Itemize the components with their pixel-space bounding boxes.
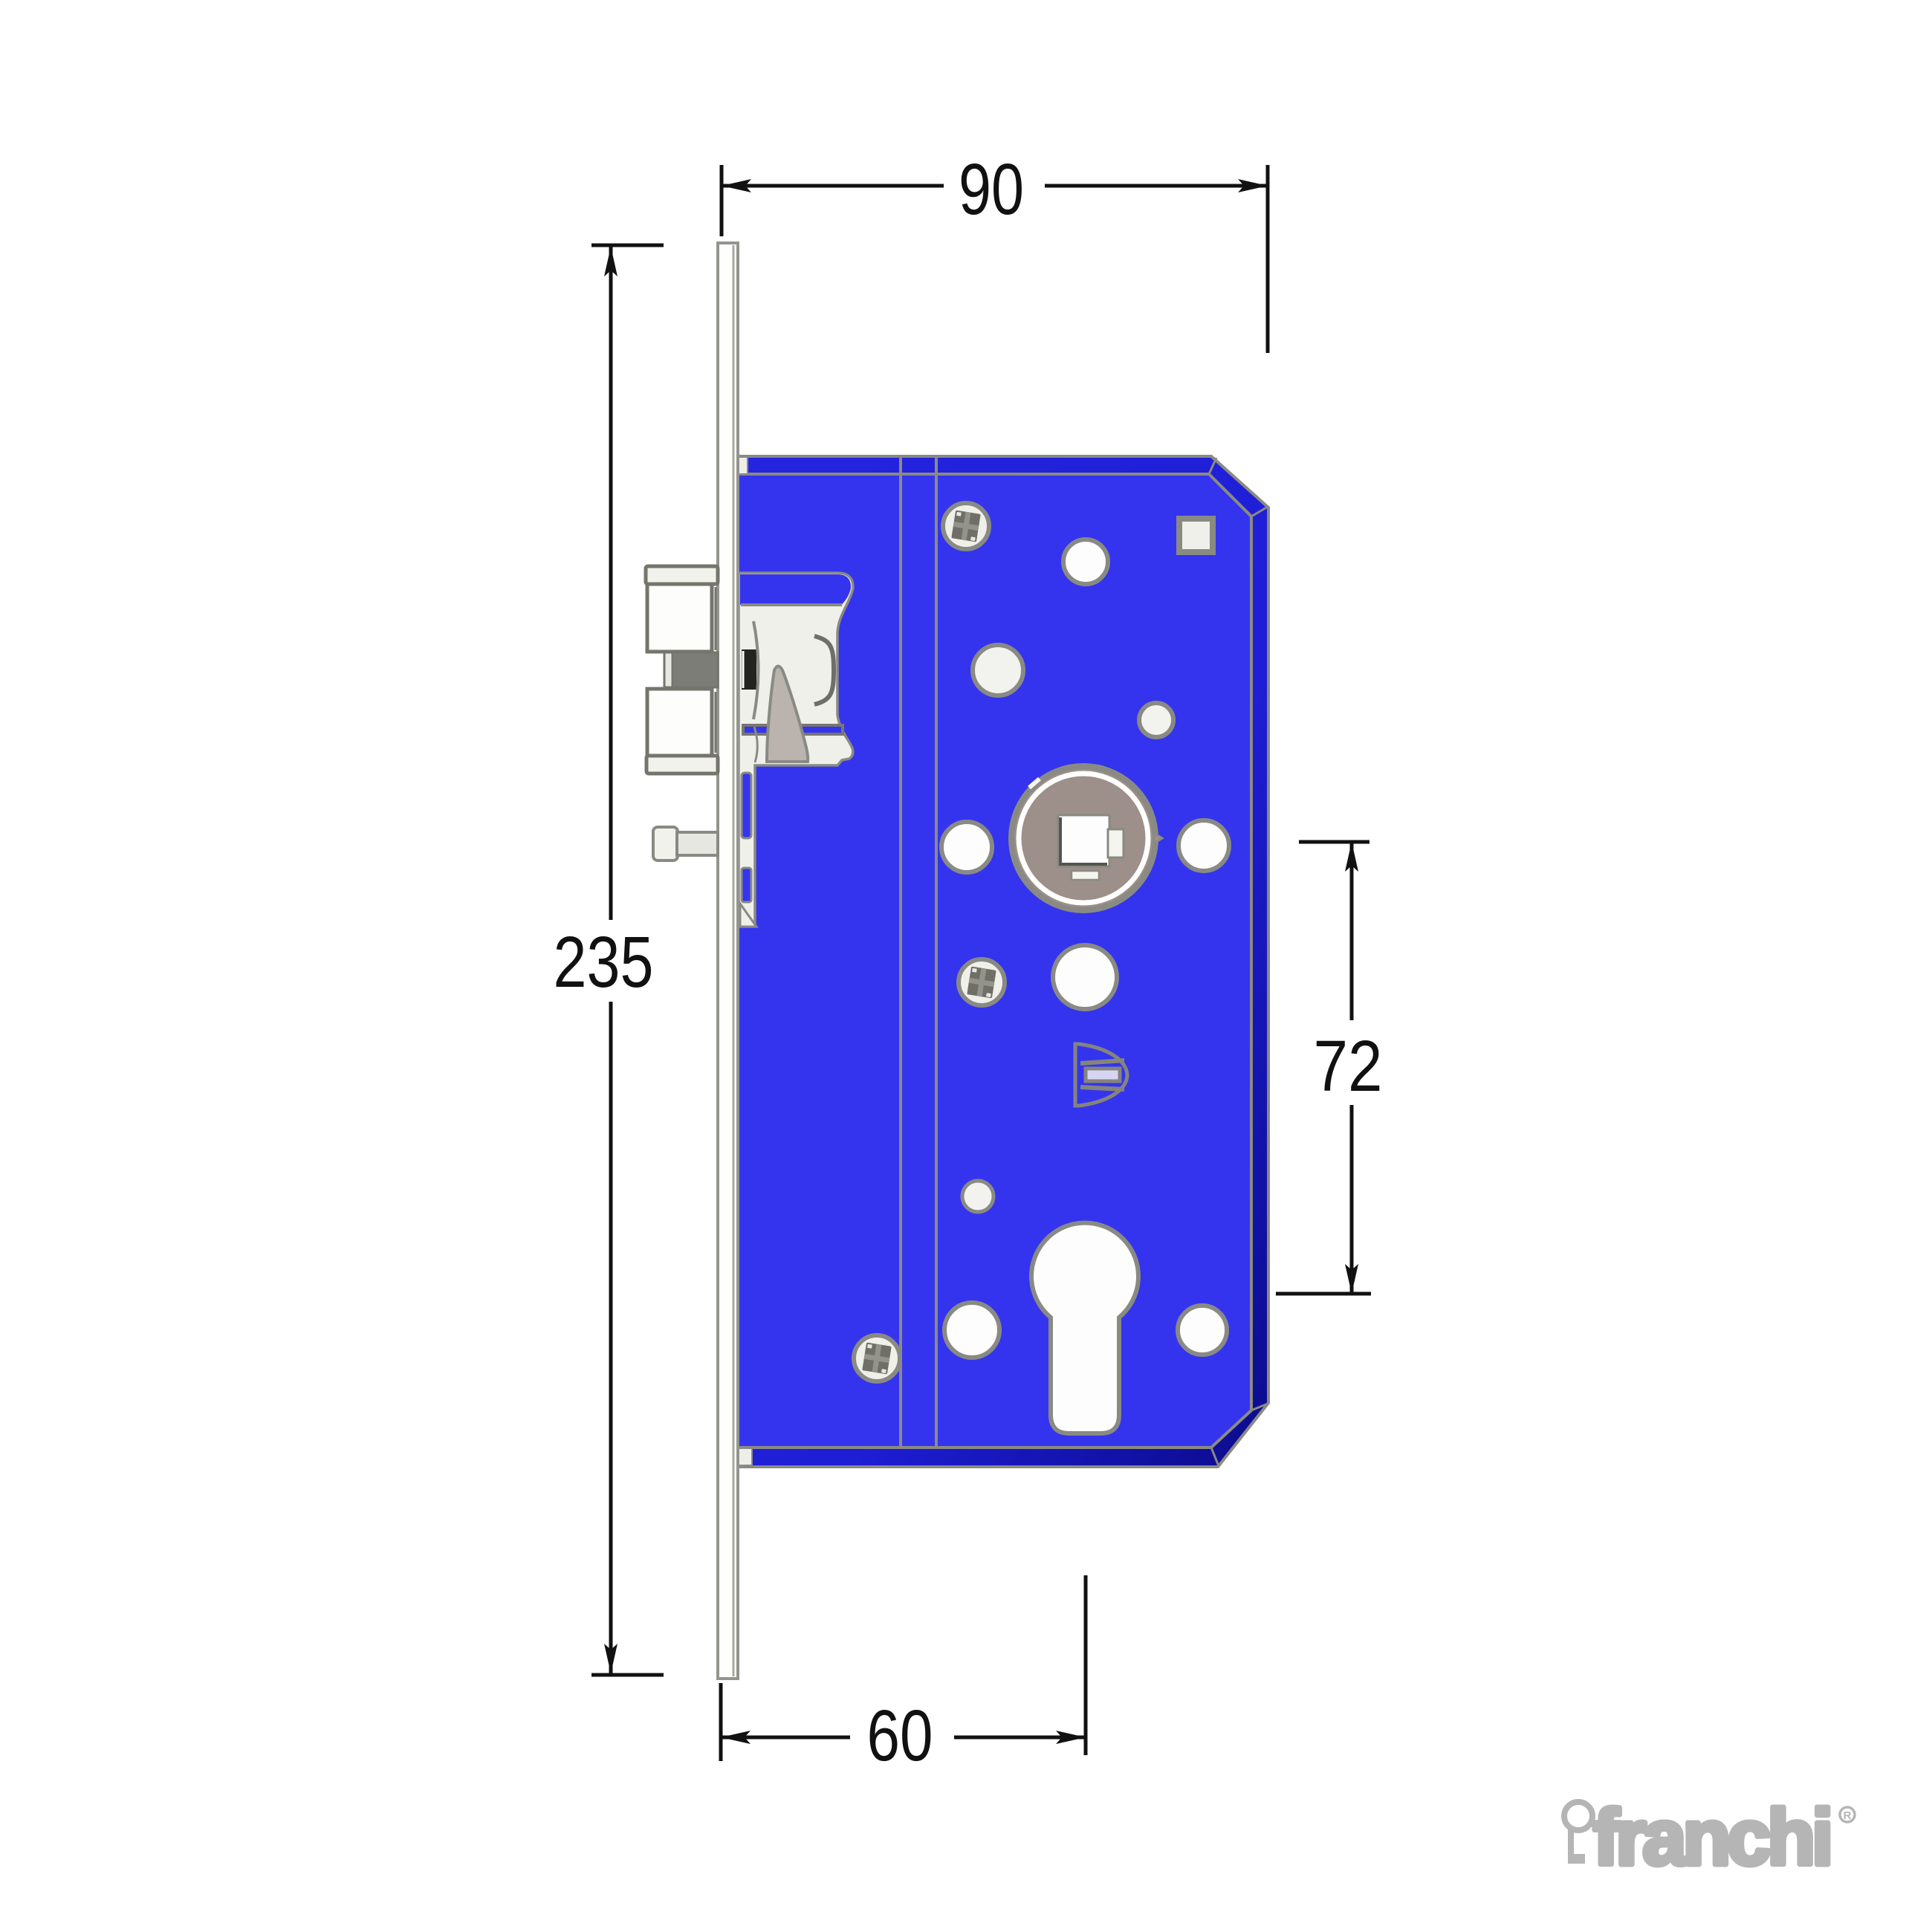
svg-text:60: 60	[867, 1695, 933, 1776]
svg-text:franchi: franchi	[1593, 1794, 1829, 1881]
svg-text:72: 72	[1314, 1025, 1383, 1106]
svg-text:R: R	[1844, 1809, 1852, 1822]
svg-text:235: 235	[554, 921, 654, 1002]
svg-text:90: 90	[959, 149, 1024, 230]
